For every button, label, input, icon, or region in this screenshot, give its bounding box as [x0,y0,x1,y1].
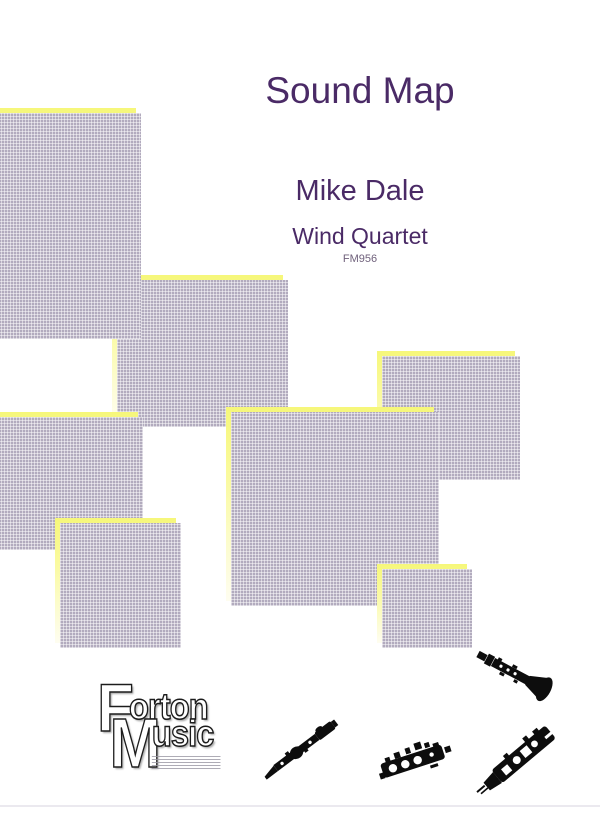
catalog-number: FM956 [120,254,600,265]
logo-text-usic: usic [152,715,214,752]
score-cover-page: Sound Map Mike Dale Wind Quartet FM956 F… [0,0,600,815]
page-title: Sound Map [120,72,600,109]
sticky-note [55,518,176,643]
music-staff-lines [152,756,221,771]
sticky-note [0,108,136,334]
flute-icon [256,706,356,794]
forton-music-logo: F orton M usic [92,676,233,806]
clarinet-icon [468,638,578,710]
sticky-note [377,564,467,643]
oboe-joint-icon [372,718,454,786]
page-bottom-rule [0,805,600,807]
ensemble-label: Wind Quartet [120,225,600,248]
composer-name: Mike Dale [120,177,600,206]
clarinet-joint-icon [470,706,575,801]
